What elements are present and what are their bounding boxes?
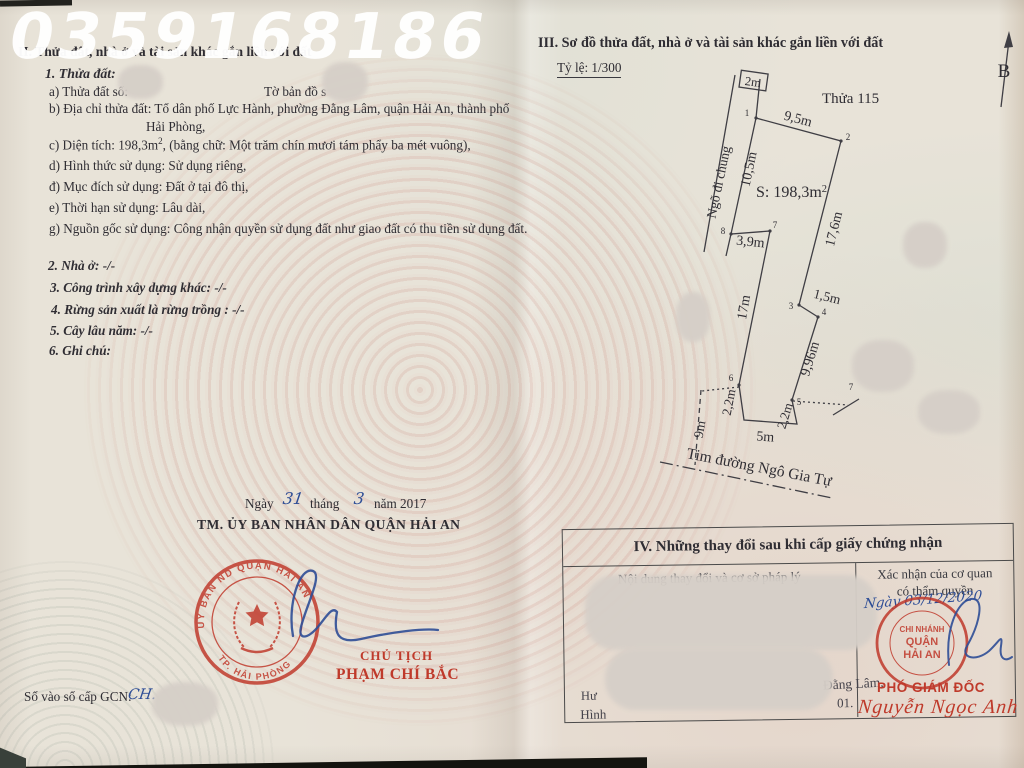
text-fragment-01: 01. bbox=[837, 695, 853, 711]
date-suffix: năm 2017 bbox=[374, 496, 426, 512]
item-a-map-sheet: Tờ bản đồ s bbox=[264, 84, 326, 100]
committee-line: TM. ỦY BAN NHÂN DÂN QUẬN HẢI AN bbox=[197, 517, 460, 533]
redaction-diagram-2 bbox=[676, 292, 710, 342]
redaction-gcn-number bbox=[152, 682, 218, 726]
deputy-director-title: PHÓ GIÁM ĐỐC bbox=[877, 680, 985, 695]
date-prefix: Ngày bbox=[245, 496, 274, 512]
item-c-area: c) Diện tích: 198,3m2, (bằng chữ: Một tr… bbox=[49, 136, 471, 153]
right-column-header-1: Xác nhận của cơ quan bbox=[856, 565, 1013, 583]
chairman-title: CHỦ TỊCH bbox=[360, 648, 433, 664]
item-e-term: e) Thời hạn sử dụng: Lâu dài, bbox=[49, 200, 205, 216]
item-b-address-2: Hải Phòng, bbox=[146, 119, 205, 135]
scale-label: Tỷ lệ: 1/300 bbox=[557, 60, 621, 78]
text-fragment-hinh: Hình bbox=[580, 707, 606, 723]
redaction-diagram-4 bbox=[918, 390, 980, 434]
item-d-use-form: d) Hình thức sử dụng: Sử dụng riêng, bbox=[49, 158, 246, 174]
item-g-origin: g) Nguồn gốc sử dụng: Công nhận quyền sử… bbox=[49, 221, 527, 237]
chairman-name: PHẠM CHÍ BẮC bbox=[336, 666, 459, 684]
text-fragment-hu: Hư bbox=[581, 689, 597, 704]
photographed-land-certificate: II. Thửa đất, nhà ở và tài sản khác gắn … bbox=[0, 0, 1024, 768]
redaction-diagram-3 bbox=[852, 340, 914, 392]
item-a-label: a) Thửa đất số: bbox=[49, 84, 128, 100]
section4-forest: 4. Rừng sản xuất là rừng trồng : -/- bbox=[51, 302, 245, 318]
phone-number-watermark: 0359168186 bbox=[4, 0, 495, 73]
section5-perennial: 5. Cây lâu năm: -/- bbox=[50, 323, 153, 339]
redaction-table-content-2 bbox=[605, 648, 833, 710]
gcn-entry-label: Số vào sổ cấp GCN: bbox=[24, 689, 132, 705]
redaction-diagram-1 bbox=[903, 222, 947, 268]
item-b-address: b) Địa chỉ thửa đất: Tổ dân phố Lực Hành… bbox=[49, 101, 509, 117]
item-dd-use-purpose: đ) Mục đích sử dụng: Đất ở tại đô thị, bbox=[49, 179, 248, 195]
section4-heading: IV. Những thay đổi sau khi cấp giấy chứn… bbox=[563, 524, 1013, 567]
date-day-handwritten: 31 bbox=[282, 489, 305, 508]
section2-house: 2. Nhà ở: -/- bbox=[48, 258, 115, 274]
item-c-post: , (bằng chữ: Một trăm chín mươi tám phẩy… bbox=[163, 137, 471, 152]
deputy-director-signature-name: Nguyễn Ngọc Anh bbox=[857, 696, 1020, 719]
section3-heading: III. Sơ đồ thửa đất, nhà ở và tài sản kh… bbox=[538, 35, 883, 52]
date-mid: tháng bbox=[310, 496, 339, 512]
section3-constructions: 3. Công trình xây dựng khác: -/- bbox=[50, 280, 227, 296]
section6-notes: 6. Ghi chú: bbox=[49, 343, 111, 359]
item-c-pre: c) Diện tích: 198,3m bbox=[49, 137, 158, 152]
redaction-table-content-1 bbox=[585, 575, 877, 650]
